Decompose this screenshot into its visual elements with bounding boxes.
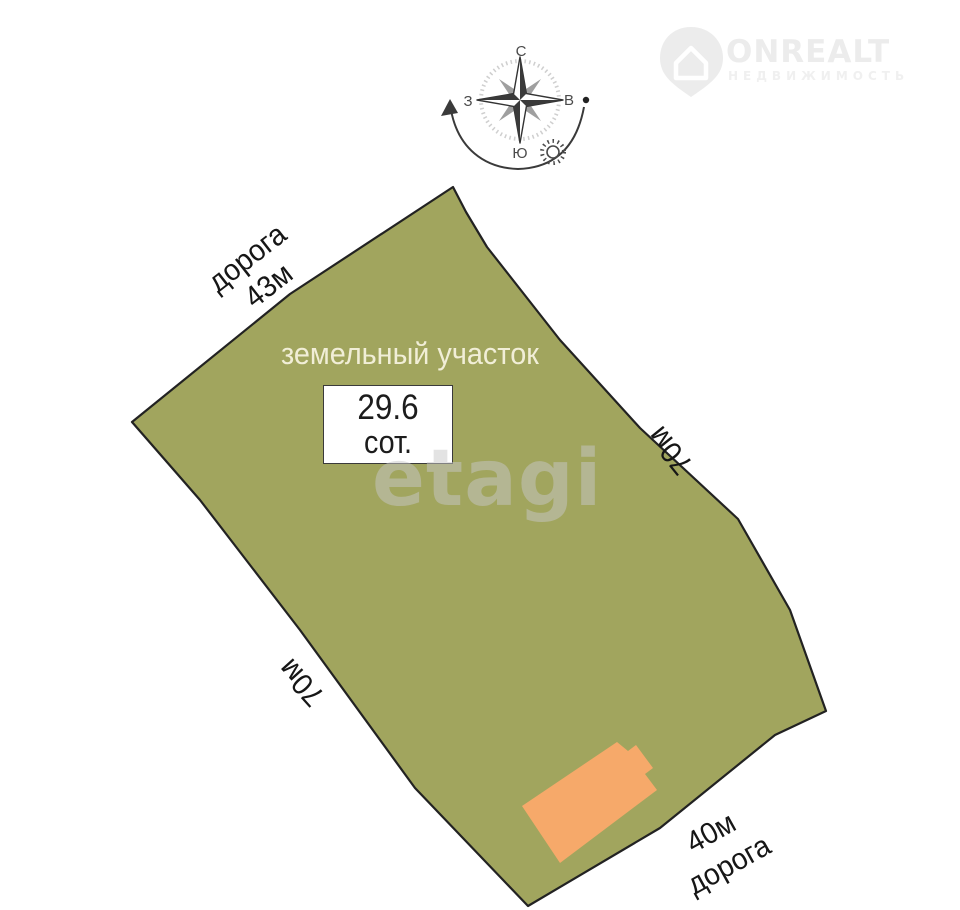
site-plan-canvas: С Ю З В ONREALT НЕДВИЖИМОСТЬ земельный у… (0, 0, 960, 910)
brand-subtitle: НЕДВИЖИМОСТЬ (728, 69, 938, 83)
compass-label-south: Ю (512, 145, 527, 162)
compass-rose: С Ю З В (441, 43, 589, 169)
compass-needle-shade-e (520, 100, 563, 106)
parcel-title: земельный участок (281, 337, 539, 371)
brand-wordmark: ONREALT (726, 34, 936, 70)
sun-path-arrowhead (441, 99, 458, 116)
compass-label-north: С (516, 43, 527, 60)
etagi-watermark: etagi (372, 440, 602, 518)
compass-label-west: З (463, 93, 472, 110)
compass-needle-shade-n (520, 57, 526, 100)
compass-needle-shade-w (477, 94, 520, 100)
compass-label-east: В (564, 92, 574, 109)
area-value: 29.6 (330, 389, 445, 427)
house-pin-icon (660, 27, 723, 97)
compass-needle-shade-s (514, 100, 520, 143)
sun-path-start-dot (583, 97, 589, 103)
